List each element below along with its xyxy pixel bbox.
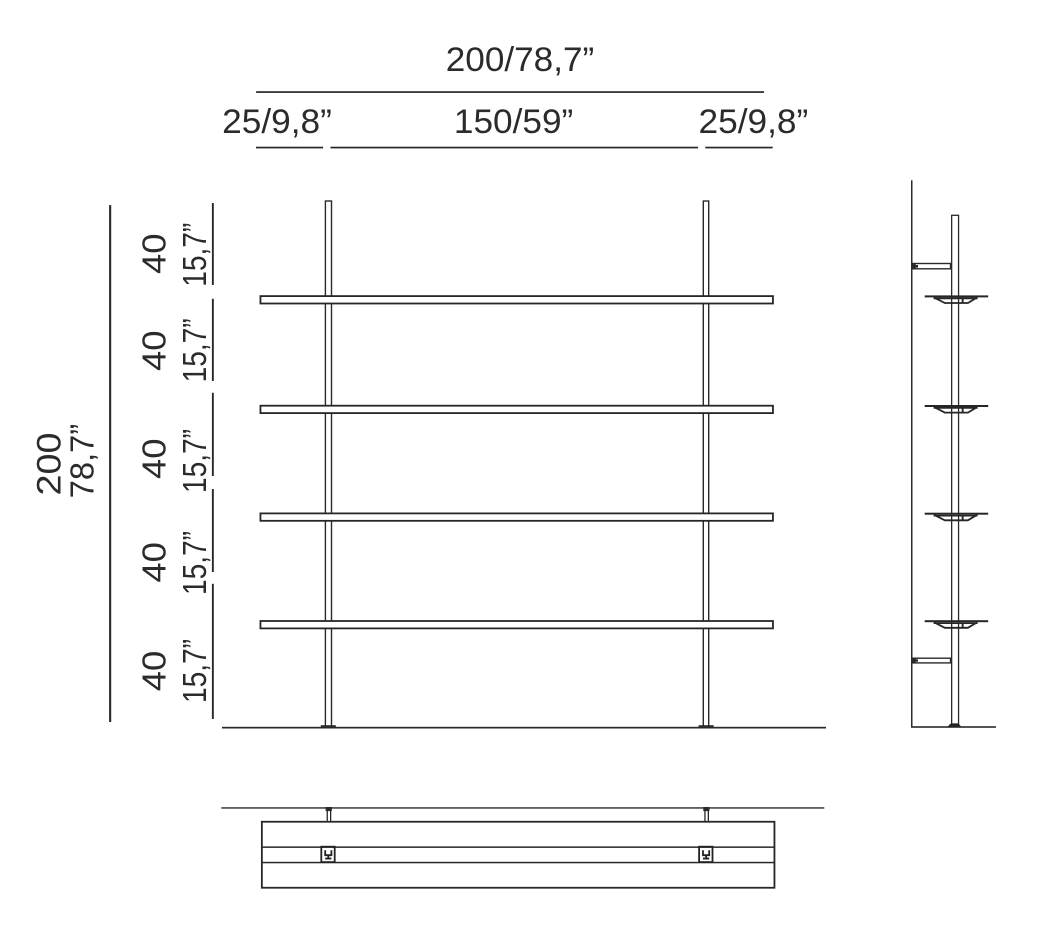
svg-text:25/9,8”: 25/9,8” [222,103,332,141]
svg-text:15,7”: 15,7” [176,639,213,703]
svg-text:200/78,7”: 200/78,7” [446,41,595,79]
svg-text:15,7”: 15,7” [176,531,213,595]
svg-text:25/9,8”: 25/9,8” [699,103,809,141]
svg-text:40: 40 [136,651,173,692]
svg-text:78,7”: 78,7” [64,424,101,499]
svg-text:15,7”: 15,7” [176,223,213,287]
svg-text:15,7”: 15,7” [176,429,213,493]
svg-text:150/59”: 150/59” [454,103,573,141]
svg-text:15,7”: 15,7” [176,318,213,382]
svg-text:40: 40 [136,439,173,480]
svg-text:40: 40 [136,331,173,372]
svg-text:40: 40 [136,542,173,583]
svg-text:40: 40 [136,234,173,274]
